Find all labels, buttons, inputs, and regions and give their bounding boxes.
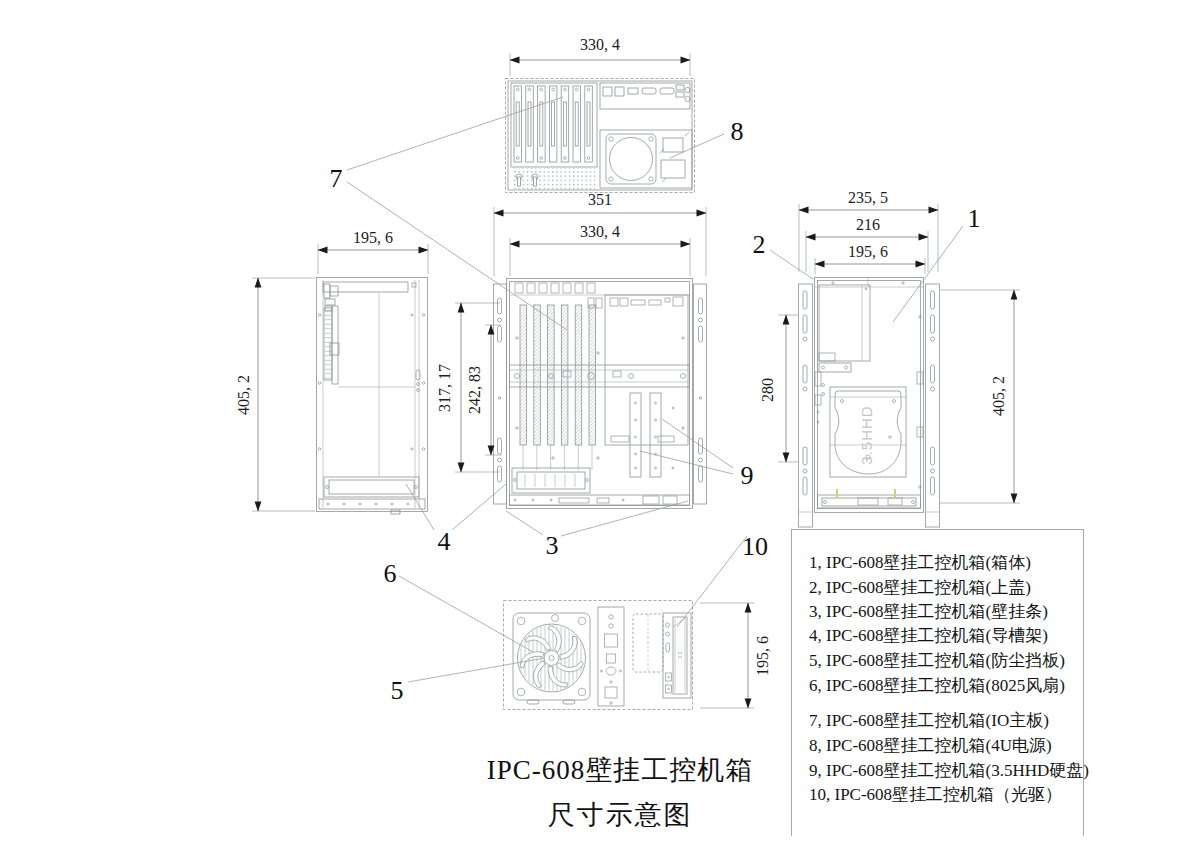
dim-label: 242, 83: [466, 366, 483, 414]
legend-item-1: 1, IPC-608壁挂工控机箱(箱体): [809, 551, 1031, 574]
marker-tick: [894, 489, 896, 498]
parts-list: 1, IPC-608壁挂工控机箱(箱体) 2, IPC-608壁挂工控机箱(上盖…: [791, 529, 1084, 836]
dim-label: 195, 6: [848, 243, 888, 260]
dim-label: 351: [588, 191, 612, 208]
marker-tick: [836, 489, 838, 498]
vent-perforation: [513, 168, 595, 189]
dim-label: 405, 2: [235, 375, 252, 415]
dim-label: 216: [856, 216, 880, 233]
hdd-label: 3.5HHD: [858, 405, 875, 464]
technical-drawing-canvas: 3.5HHD: [0, 0, 1200, 864]
legend-item-9: 9, IPC-608壁挂工控机箱(3.5HHD硬盘): [809, 759, 1089, 782]
legend-item-10: 10, IPC-608壁挂工控机箱（光驱）: [809, 783, 1062, 806]
dim-label: 195, 6: [754, 636, 771, 676]
legend-item-5: 5, IPC-608壁挂工控机箱(防尘挡板): [809, 649, 1065, 672]
legend-item-8: 8, IPC-608壁挂工控机箱(4U电源): [809, 734, 1052, 757]
dim-label: 280: [759, 378, 776, 402]
callout-2: 2: [753, 230, 766, 259]
dim-label: 235, 5: [848, 189, 888, 206]
legend-item-7: 7, IPC-608壁挂工控机箱(IO主板): [809, 709, 1049, 732]
dim-label: 405, 2: [990, 376, 1007, 416]
drawing-title: IPC-608壁挂工控机箱 尺寸示意图: [450, 752, 790, 833]
legend-item-6: 6, IPC-608壁挂工控机箱(8025风扇): [809, 674, 1065, 697]
legend-item-4: 4, IPC-608壁挂工控机箱(导槽架): [809, 624, 1048, 647]
callout-9: 9: [741, 461, 754, 490]
legend-item-3: 3, IPC-608壁挂工控机箱(壁挂条): [809, 600, 1048, 623]
callout-7: 7: [330, 164, 343, 193]
callout-5: 5: [391, 676, 404, 705]
callout-3: 3: [546, 531, 559, 560]
dim-label: 317, 17: [436, 364, 453, 412]
dim-label: 195, 6: [353, 229, 393, 246]
callout-4: 4: [438, 527, 451, 556]
callout-6: 6: [384, 559, 397, 588]
callout-8: 8: [731, 117, 744, 146]
legend-item-2: 2, IPC-608壁挂工控机箱(上盖): [809, 576, 1031, 599]
drawing-title-line1: IPC-608壁挂工控机箱: [450, 752, 790, 788]
drawing-title-line2: 尺寸示意图: [450, 797, 790, 833]
callout-1: 1: [968, 204, 981, 233]
dim-label: 330, 4: [580, 223, 620, 240]
dim-label: 330, 4: [580, 36, 620, 53]
callout-10: 10: [742, 532, 768, 561]
